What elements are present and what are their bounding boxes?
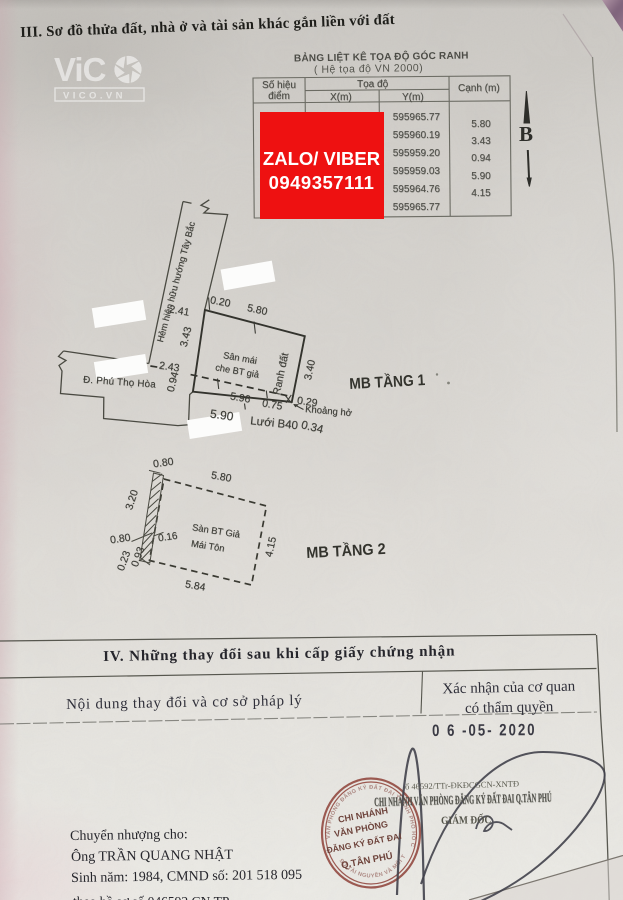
svg-text:VICO.VN: VICO.VN: [63, 91, 126, 102]
svg-text:ViC: ViC: [54, 51, 106, 88]
